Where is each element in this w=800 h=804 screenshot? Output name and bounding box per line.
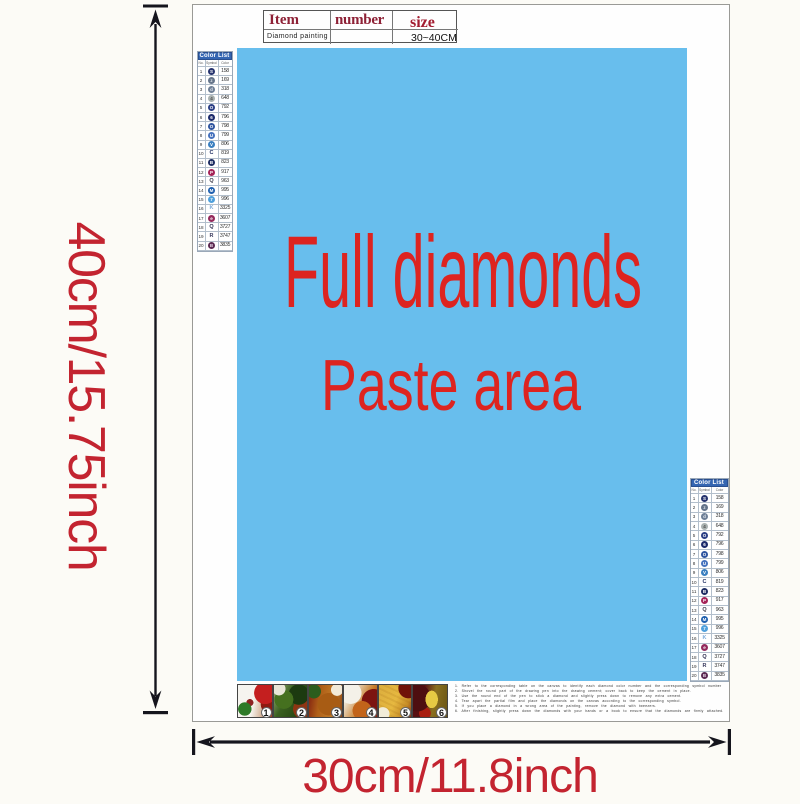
svg-text:Full diamonds: Full diamonds: [284, 215, 642, 329]
svg-text:Paste area: Paste area: [321, 346, 582, 426]
